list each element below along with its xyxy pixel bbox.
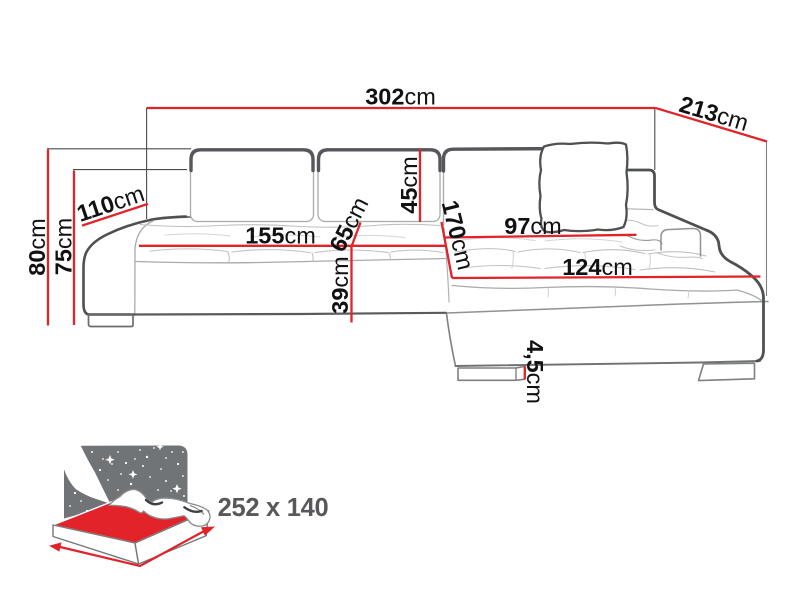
svg-text:80cm: 80cm (24, 218, 50, 275)
svg-text:252 x 140: 252 x 140 (218, 494, 329, 522)
svg-text:213cm: 213cm (676, 91, 751, 136)
svg-text:302cm: 302cm (365, 84, 436, 110)
svg-text:45cm: 45cm (396, 156, 422, 213)
svg-text:155cm: 155cm (245, 223, 316, 249)
svg-text:97cm: 97cm (504, 213, 561, 239)
svg-text:110cm: 110cm (74, 180, 148, 227)
svg-text:75cm: 75cm (51, 218, 77, 275)
svg-text:39cm: 39cm (327, 256, 353, 313)
svg-text:124cm: 124cm (562, 254, 633, 280)
